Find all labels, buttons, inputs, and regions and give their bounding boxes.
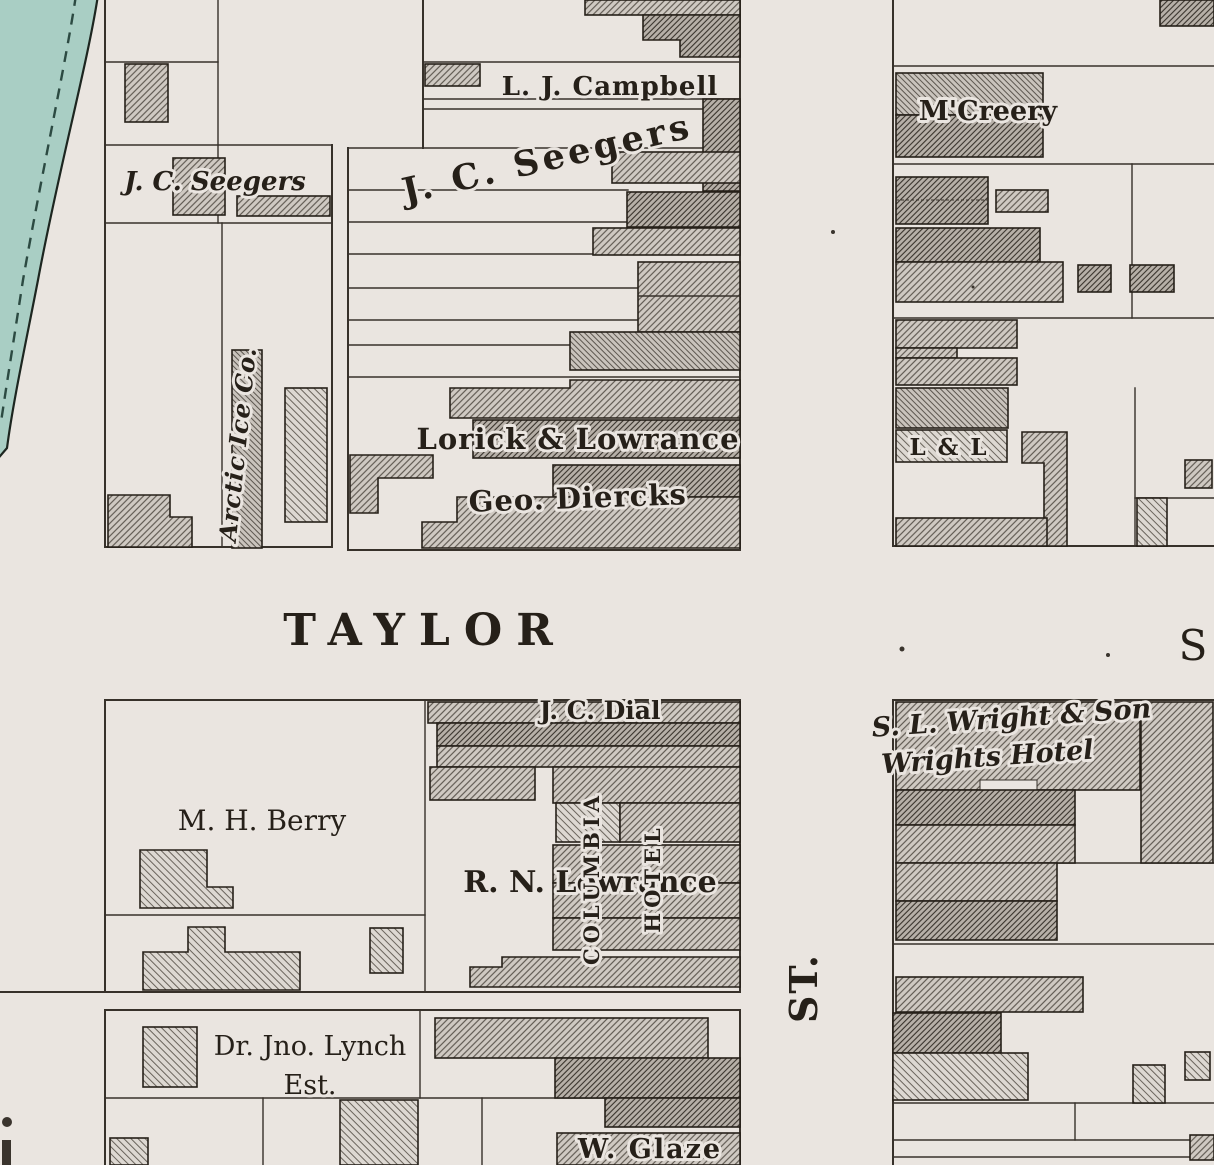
map-speck: [831, 230, 835, 234]
label-seegers-small: J. C. Seegers: [119, 167, 306, 197]
street-label-s-partial: S: [1179, 621, 1208, 670]
street-label-st: ST.: [781, 953, 826, 1023]
label-campbell: L. J. Campbell: [502, 72, 718, 102]
building: [638, 262, 740, 332]
building: [896, 228, 1040, 262]
label-lorick-lowrance: Lorick & Lowrance: [416, 422, 739, 456]
building: [896, 518, 1047, 546]
building: [896, 358, 1017, 385]
label-lynch-line1: Dr. Jno. Lynch: [214, 1031, 407, 1062]
building: [896, 977, 1083, 1012]
building: [1190, 1135, 1214, 1160]
label-columbia-vertical: COLUMBIA: [579, 791, 604, 965]
building: [370, 928, 403, 973]
building: [1141, 702, 1213, 863]
building: [585, 0, 740, 15]
building: [1130, 265, 1174, 292]
building: [437, 723, 740, 746]
building: [555, 1058, 740, 1098]
label-w-glaze: W. Glaze: [577, 1134, 722, 1165]
building: [1160, 0, 1214, 26]
edge-mark: [2, 1117, 12, 1165]
building: [896, 388, 1008, 428]
building: [1185, 1052, 1210, 1080]
building: [893, 1013, 1001, 1053]
building: [435, 1018, 708, 1058]
building: [896, 863, 1057, 901]
building-courtyard: [980, 780, 1037, 790]
building: [340, 1100, 418, 1165]
building: [896, 825, 1075, 863]
building: [430, 767, 535, 800]
building: [285, 388, 327, 522]
building: [893, 1053, 1028, 1100]
building: [125, 64, 168, 122]
street-st-vertical: ST.: [781, 953, 826, 1023]
street-label-taylor: TAYLOR: [283, 605, 567, 656]
building-columbia-hotel: [620, 803, 740, 842]
building: [593, 228, 740, 255]
label-mccreery: M'Creery: [919, 96, 1058, 127]
label-berry: M. H. Berry: [178, 804, 347, 837]
label-lynch-line2: Est.: [284, 1070, 337, 1101]
building: [470, 957, 740, 987]
building: [237, 196, 330, 216]
map-speck: [1106, 653, 1110, 657]
building: [1185, 460, 1212, 488]
building: [896, 320, 1017, 348]
building: [996, 190, 1048, 212]
building: [143, 1027, 197, 1087]
label-jc-dial: J. C. Dial: [537, 696, 660, 725]
map-speck: [900, 647, 905, 652]
building: [896, 901, 1057, 940]
building: [570, 332, 740, 370]
map-canvas: J. C. Seegers Arctic Ice Co.: [0, 0, 1214, 1165]
label-hotel-vertical: HOTEL: [640, 823, 665, 933]
map-speck: [972, 286, 975, 289]
building: [896, 790, 1075, 825]
building: [1137, 498, 1167, 546]
building: [896, 348, 957, 358]
building: [425, 64, 480, 86]
building: [896, 262, 1063, 302]
label-l-and-l: L & L: [909, 434, 988, 461]
building: [110, 1138, 148, 1165]
building: [627, 192, 740, 227]
building: [605, 1098, 740, 1127]
building: [437, 746, 740, 767]
building: [1133, 1065, 1165, 1103]
building: [1078, 265, 1111, 292]
